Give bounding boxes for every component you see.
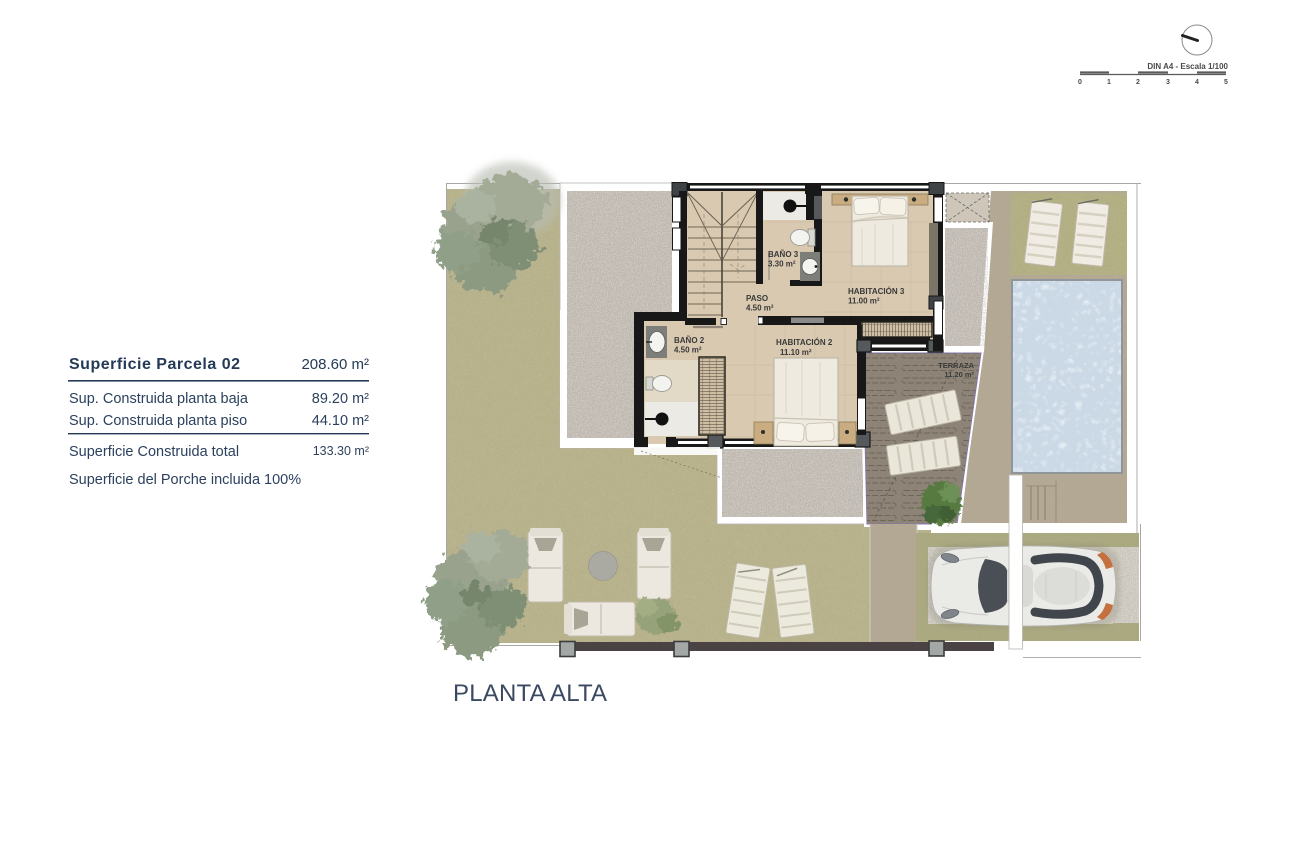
svg-text:3.30 m²: 3.30 m² (768, 260, 796, 269)
svg-text:Sup. Construida planta piso: Sup. Construida planta piso (69, 413, 247, 429)
svg-text:0: 0 (1078, 79, 1082, 86)
svg-text:Superficie del Porche incluida: Superficie del Porche incluida 100% (69, 472, 301, 488)
svg-text:11.20 m²: 11.20 m² (944, 370, 974, 379)
svg-text:HABITACIÓN 2: HABITACIÓN 2 (776, 338, 833, 347)
svg-text:1: 1 (1107, 79, 1111, 86)
svg-text:Superficie Construida total: Superficie Construida total (69, 444, 239, 460)
svg-text:DIN A4 - Escala 1/100: DIN A4 - Escala 1/100 (1147, 62, 1228, 71)
svg-text:89.20 m²: 89.20 m² (312, 391, 369, 407)
svg-text:Superficie Parcela 02: Superficie Parcela 02 (69, 356, 240, 373)
svg-text:4.50 m²: 4.50 m² (746, 304, 774, 313)
svg-text:2: 2 (1136, 79, 1140, 86)
svg-text:Sup. Construida planta baja: Sup. Construida planta baja (69, 391, 249, 407)
svg-text:133.30 m²: 133.30 m² (313, 444, 369, 458)
svg-text:11.00 m²: 11.00 m² (848, 297, 880, 306)
svg-text:PLANTA ALTA: PLANTA ALTA (453, 680, 607, 707)
svg-text:PASO: PASO (746, 294, 768, 303)
svg-text:4: 4 (1195, 79, 1199, 86)
svg-text:5: 5 (1224, 79, 1228, 86)
svg-text:4.50 m²: 4.50 m² (674, 346, 702, 355)
svg-text:44.10 m²: 44.10 m² (312, 413, 369, 429)
svg-text:TERRAZA: TERRAZA (938, 361, 974, 370)
svg-text:11.10 m²: 11.10 m² (780, 348, 812, 357)
svg-text:BAÑO 3: BAÑO 3 (768, 250, 799, 259)
svg-text:BAÑO 2: BAÑO 2 (674, 336, 705, 345)
svg-text:3: 3 (1166, 79, 1170, 86)
svg-text:HABITACIÓN 3: HABITACIÓN 3 (848, 287, 905, 296)
svg-text:208.60 m²: 208.60 m² (301, 356, 369, 373)
